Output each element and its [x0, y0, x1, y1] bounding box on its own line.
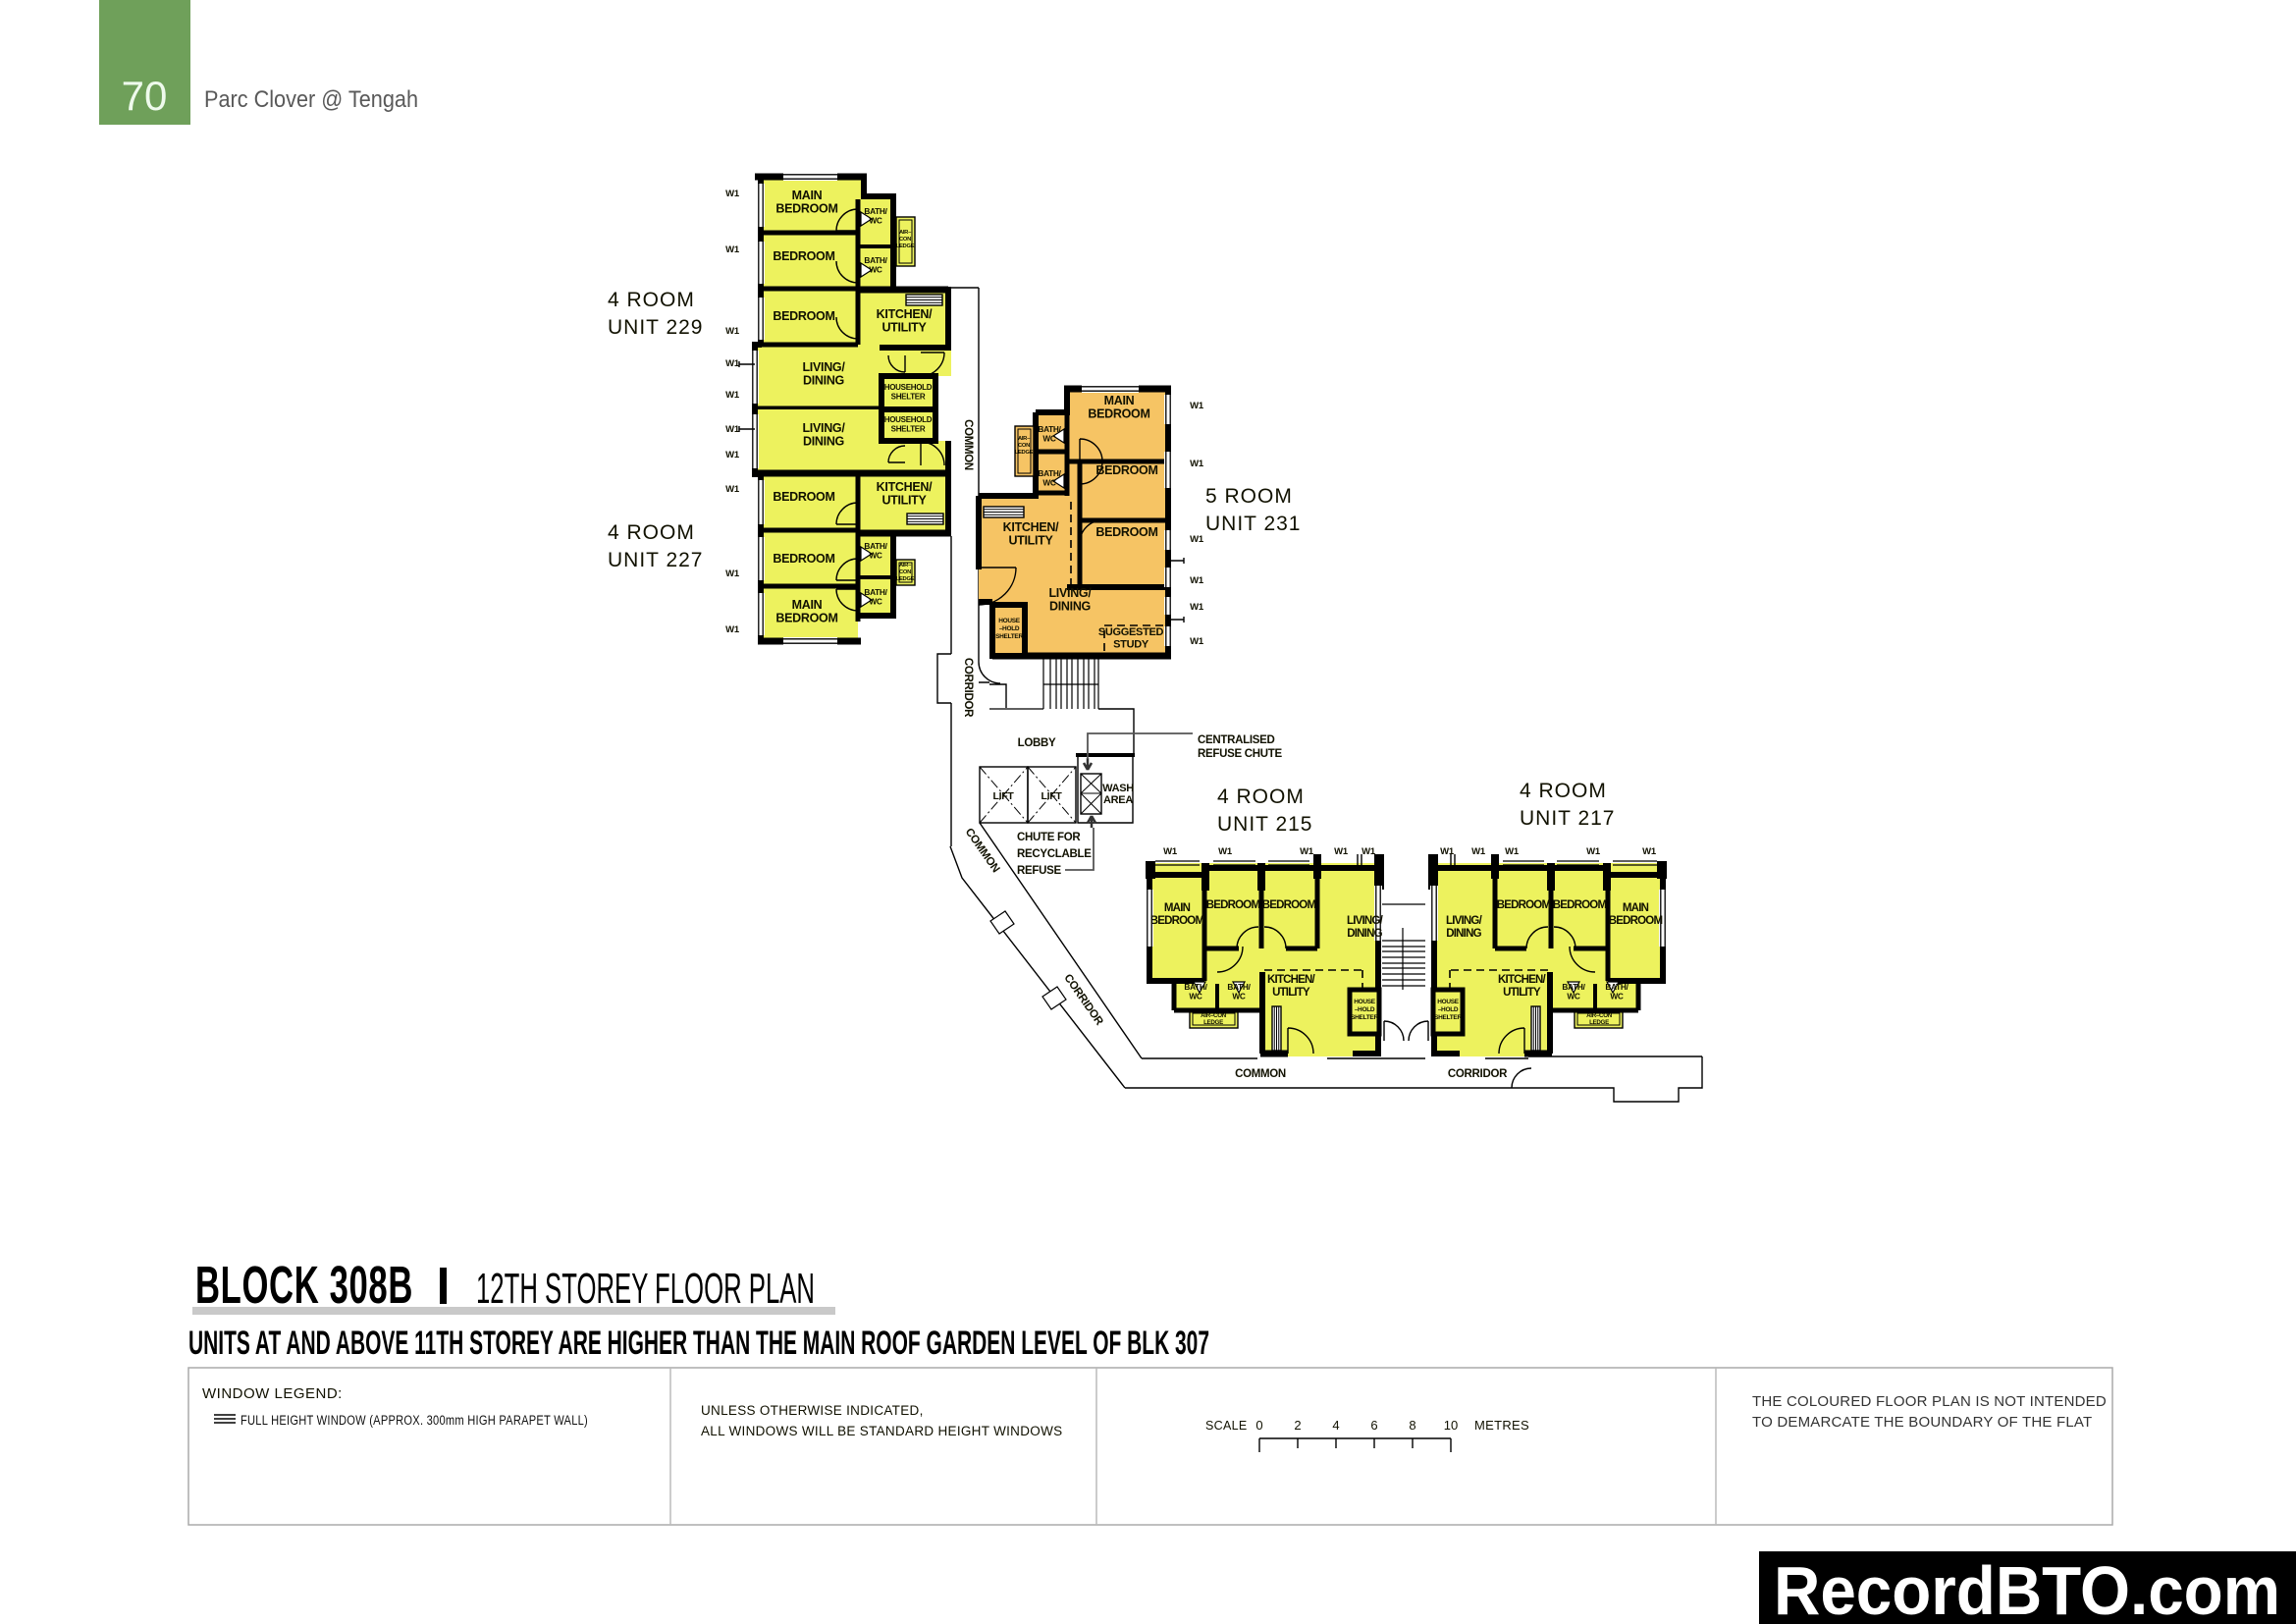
svg-text:W1: W1 [1190, 459, 1204, 469]
svg-text:KITCHEN/UTILITY: KITCHEN/UTILITY [1003, 520, 1059, 548]
svg-text:CORRIDOR: CORRIDOR [1448, 1068, 1508, 1080]
svg-text:W1: W1 [725, 424, 740, 435]
svg-text:W1: W1 [725, 326, 740, 337]
svg-text:BEDROOM: BEDROOM [1206, 899, 1260, 911]
svg-text:BEDROOM: BEDROOM [1497, 899, 1551, 911]
svg-text:RecordBTO.com: RecordBTO.com [1774, 1552, 2280, 1624]
svg-text:W1: W1 [1190, 534, 1204, 545]
svg-text:4: 4 [1332, 1418, 1339, 1433]
svg-text:LIFT: LIFT [993, 790, 1015, 802]
svg-text:W1: W1 [1300, 846, 1314, 857]
svg-text:W1: W1 [1362, 846, 1376, 857]
svg-text:2: 2 [1294, 1418, 1301, 1433]
svg-text:ALL WINDOWS WILL BE STANDA: ALL WINDOWS WILL BE STANDARD HEIGHT WIND… [701, 1424, 1062, 1438]
svg-text:BEDROOM: BEDROOM [773, 249, 834, 263]
svg-text:COMMON: COMMON [1235, 1068, 1286, 1080]
svg-text:W1: W1 [725, 244, 740, 255]
svg-text:W1: W1 [1334, 846, 1349, 857]
svg-text:W1: W1 [1163, 846, 1178, 857]
svg-text:KITCHEN/UTILITY: KITCHEN/UTILITY [877, 480, 933, 508]
svg-text:HOUSE–HOLDSHELTER: HOUSE–HOLDSHELTER [1351, 999, 1378, 1021]
svg-text:10: 10 [1444, 1418, 1458, 1433]
svg-text:LIVING/DINING: LIVING/DINING [802, 421, 845, 449]
svg-text:COMMON: COMMON [962, 419, 974, 470]
svg-text:CORRIDOR: CORRIDOR [962, 658, 974, 718]
svg-text:BEDROOM: BEDROOM [1095, 463, 1157, 477]
svg-text:UNLESS OTHERWISE INDICATED,: UNLESS OTHERWISE INDICATED, [701, 1403, 924, 1418]
svg-text:W1: W1 [725, 624, 740, 635]
svg-text:Parc Clover @ Tengah: Parc Clover @ Tengah [204, 86, 418, 113]
svg-text:KITCHEN/UTILITY: KITCHEN/UTILITY [1267, 974, 1316, 999]
svg-text:70: 70 [122, 73, 168, 119]
svg-text:LIFT: LIFT [1041, 790, 1063, 802]
svg-text:KITCHEN/UTILITY: KITCHEN/UTILITY [877, 307, 933, 335]
svg-text:WASHAREA: WASHAREA [1102, 783, 1134, 806]
svg-text:FULL HEIGHT WINDOW (APPROX.: FULL HEIGHT WINDOW (APPROX. 300mm HIGH P… [240, 1413, 588, 1428]
svg-text:W1: W1 [725, 568, 740, 579]
svg-text:HOUSE–HOLDSHELTER: HOUSE–HOLDSHELTER [995, 618, 1023, 640]
svg-text:W1: W1 [725, 189, 740, 199]
svg-text:W1: W1 [1440, 846, 1455, 857]
svg-text:BEDROOM: BEDROOM [1553, 899, 1607, 911]
svg-text:0: 0 [1255, 1418, 1262, 1433]
svg-text:LIVING/DINING: LIVING/DINING [1347, 915, 1384, 940]
svg-text:BEDROOM: BEDROOM [1095, 525, 1157, 539]
svg-text:LOBBY: LOBBY [1018, 737, 1056, 749]
svg-text:W1: W1 [725, 358, 740, 369]
svg-text:BLOCK 308B: BLOCK 308B [195, 1256, 413, 1315]
svg-text:LIVING/DINING: LIVING/DINING [1446, 915, 1483, 940]
svg-text:BEDROOM: BEDROOM [773, 490, 834, 504]
svg-text:LIVING/DINING: LIVING/DINING [802, 360, 845, 388]
svg-text:AIR–CONLEDGE: AIR–CONLEDGE [1201, 1012, 1227, 1026]
svg-text:SCALE: SCALE [1205, 1419, 1248, 1433]
svg-text:LIVING/DINING: LIVING/DINING [1048, 586, 1092, 614]
svg-text:W1: W1 [1586, 846, 1601, 857]
svg-text:W1: W1 [1642, 846, 1657, 857]
svg-text:WINDOW LEGEND:: WINDOW LEGEND: [202, 1385, 343, 1402]
svg-text:W1: W1 [1505, 846, 1520, 857]
svg-text:BEDROOM: BEDROOM [773, 309, 834, 323]
svg-text:8: 8 [1409, 1418, 1415, 1433]
svg-text:W1: W1 [1190, 602, 1204, 613]
svg-text:UNITS AT AND ABOVE 11TH STOREY: UNITS AT AND ABOVE 11TH STOREY ARE HIGHE… [188, 1325, 1209, 1362]
svg-text:12TH STOREY FLOOR PLAN: 12TH STOREY FLOOR PLAN [476, 1265, 815, 1313]
svg-text:W1: W1 [1471, 846, 1486, 857]
svg-text:AIR–CONLEDGE: AIR–CONLEDGE [1586, 1012, 1613, 1026]
svg-text:METRES: METRES [1474, 1418, 1529, 1433]
svg-text:HOUSE–HOLDSHELTER: HOUSE–HOLDSHELTER [1434, 999, 1462, 1021]
svg-text:KITCHEN/UTILITY: KITCHEN/UTILITY [1498, 974, 1547, 999]
svg-text:W1: W1 [1190, 575, 1204, 586]
svg-text:BEDROOM: BEDROOM [1262, 899, 1316, 911]
svg-text:W1: W1 [725, 450, 740, 460]
svg-text:W1: W1 [725, 390, 740, 401]
svg-text:W1: W1 [1218, 846, 1233, 857]
svg-text:6: 6 [1370, 1418, 1377, 1433]
svg-text:W1: W1 [1190, 401, 1204, 411]
svg-text:W1: W1 [725, 484, 740, 495]
svg-text:W1: W1 [1190, 636, 1204, 647]
svg-text:TO DEMARCATE THE BOUNDARY OF T: TO DEMARCATE THE BOUNDARY OF THE FLAT [1752, 1414, 2092, 1431]
svg-text:THE COLOURED FLOOR PLAN IS NOT: THE COLOURED FLOOR PLAN IS NOT INTENDED [1752, 1393, 2107, 1410]
svg-text:BEDROOM: BEDROOM [773, 552, 834, 566]
